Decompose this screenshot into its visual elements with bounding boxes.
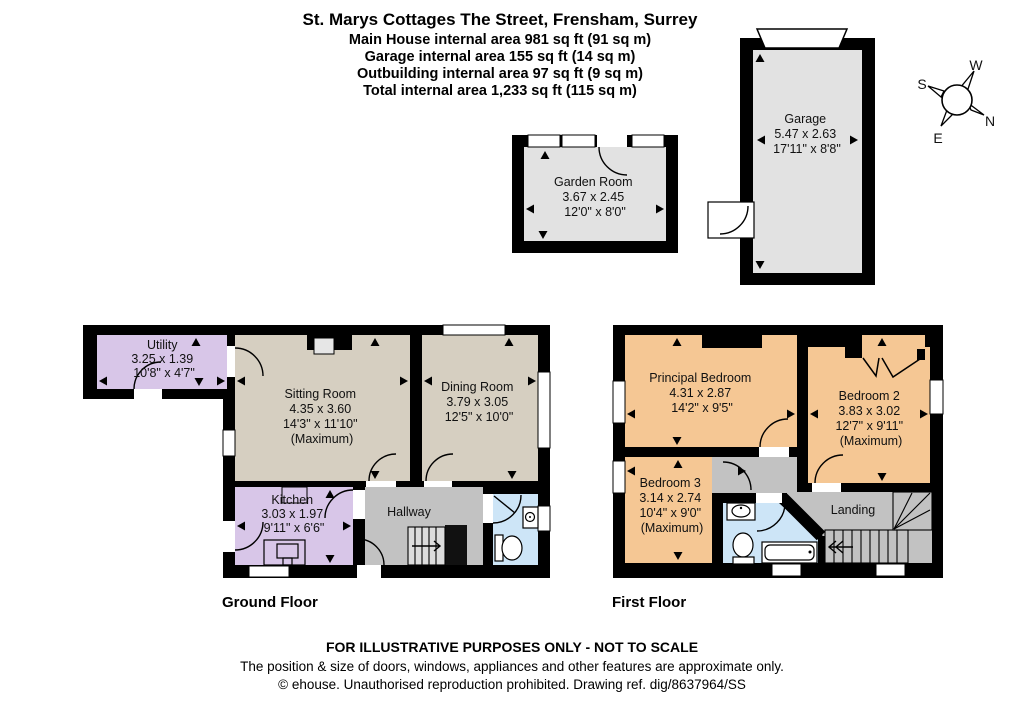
copyright-line: © ehouse. Unauthorised reproduction proh… <box>0 676 1024 694</box>
window <box>772 564 801 576</box>
garage-door-icon <box>757 29 847 48</box>
door-opening <box>353 490 365 519</box>
first-floor-label: First Floor <box>612 594 686 611</box>
toilet-icon <box>733 533 753 557</box>
wall-stub <box>818 536 825 563</box>
window <box>930 380 943 414</box>
room-landing-label: Landing <box>831 503 876 517</box>
door-opening <box>424 481 452 487</box>
window <box>876 564 905 576</box>
door-opening <box>812 483 841 492</box>
wall-stub <box>917 349 925 360</box>
room-garden-room-label: Garden Room 3.67 x 2.45 12'0" x 8'0" <box>554 175 636 219</box>
ground-floor-label: Ground Floor <box>222 594 318 611</box>
floorplan-page: St. Marys Cottages The Street, Frensham,… <box>0 0 1024 724</box>
compass-point-s <box>928 86 944 97</box>
sink-icon <box>732 505 750 517</box>
understair-block <box>445 525 467 565</box>
window <box>632 135 664 147</box>
bathtub-tap <box>809 551 812 554</box>
door-opening <box>227 346 235 377</box>
door-opening <box>223 521 235 552</box>
compass-label-south: S <box>917 76 926 92</box>
window <box>223 430 235 456</box>
window <box>528 135 560 147</box>
fireplace-icon <box>314 338 334 354</box>
door-opening <box>597 135 627 147</box>
front-door-opening <box>357 565 381 578</box>
disclaimer-scale: FOR ILLUSTRATIVE PURPOSES ONLY - NOT TO … <box>0 639 1024 655</box>
window <box>443 325 505 335</box>
room-garage <box>753 50 862 273</box>
room-bedroom-2-label: Bedroom 2 3.83 x 3.02 12'7" x 9'11" (Max… <box>835 389 906 448</box>
room-bedroom-3-label: Bedroom 3 3.14 x 2.74 10'4" x 9'0" (Maxi… <box>639 476 704 535</box>
bedroom-2-wardrobe-nook <box>862 335 925 358</box>
stairs <box>408 527 445 565</box>
chimney-breast <box>702 335 762 348</box>
first-floor-plan: Principal Bedroom 4.31 x 2.87 14'2" x 9'… <box>613 325 943 578</box>
door-opening <box>759 447 789 457</box>
window <box>538 506 550 531</box>
garage-plan: Garage 5.47 x 2.63 17'11" x 8'8" <box>708 29 875 285</box>
compass-circle <box>942 85 972 115</box>
door-opening <box>134 389 162 399</box>
disclaimer-approx: The position & size of doors, windows, a… <box>0 658 1024 676</box>
ground-floor-plan: Utility 3.25 x 1.39 10'8" x 4'7" Sitting… <box>83 325 550 578</box>
window <box>249 566 289 577</box>
door-opening <box>366 481 396 487</box>
sink-drain <box>529 516 531 518</box>
window <box>562 135 595 147</box>
door-opening <box>756 493 782 503</box>
window <box>538 372 550 448</box>
footer-block: FOR ILLUSTRATIVE PURPOSES ONLY - NOT TO … <box>0 639 1024 694</box>
window <box>613 381 625 423</box>
room-dining-room-label: Dining Room 3.79 x 3.05 12'5" x 10'0" <box>441 380 517 424</box>
toilet-icon <box>502 536 522 560</box>
compass-label-east: E <box>933 130 942 146</box>
floorplan-canvas: Garden Room 3.67 x 2.45 12'0" x 8'0" Gar… <box>0 0 1024 724</box>
window <box>613 461 625 493</box>
bathtub-icon <box>765 545 814 560</box>
compass-rose: W S N E <box>917 57 995 146</box>
toilet-icon <box>733 557 754 564</box>
compass-label-west: W <box>969 57 983 73</box>
sink-tap <box>740 507 742 509</box>
room-sitting-room-label: Sitting Room 4.35 x 3.60 14'3" x 11'10" … <box>283 387 361 446</box>
door-opening <box>483 494 493 523</box>
wall-stub <box>845 347 862 358</box>
room-hallway-label: Hallway <box>387 505 432 519</box>
garden-room-plan: Garden Room 3.67 x 2.45 12'0" x 8'0" <box>512 135 678 253</box>
compass-label-north: N <box>985 113 995 129</box>
